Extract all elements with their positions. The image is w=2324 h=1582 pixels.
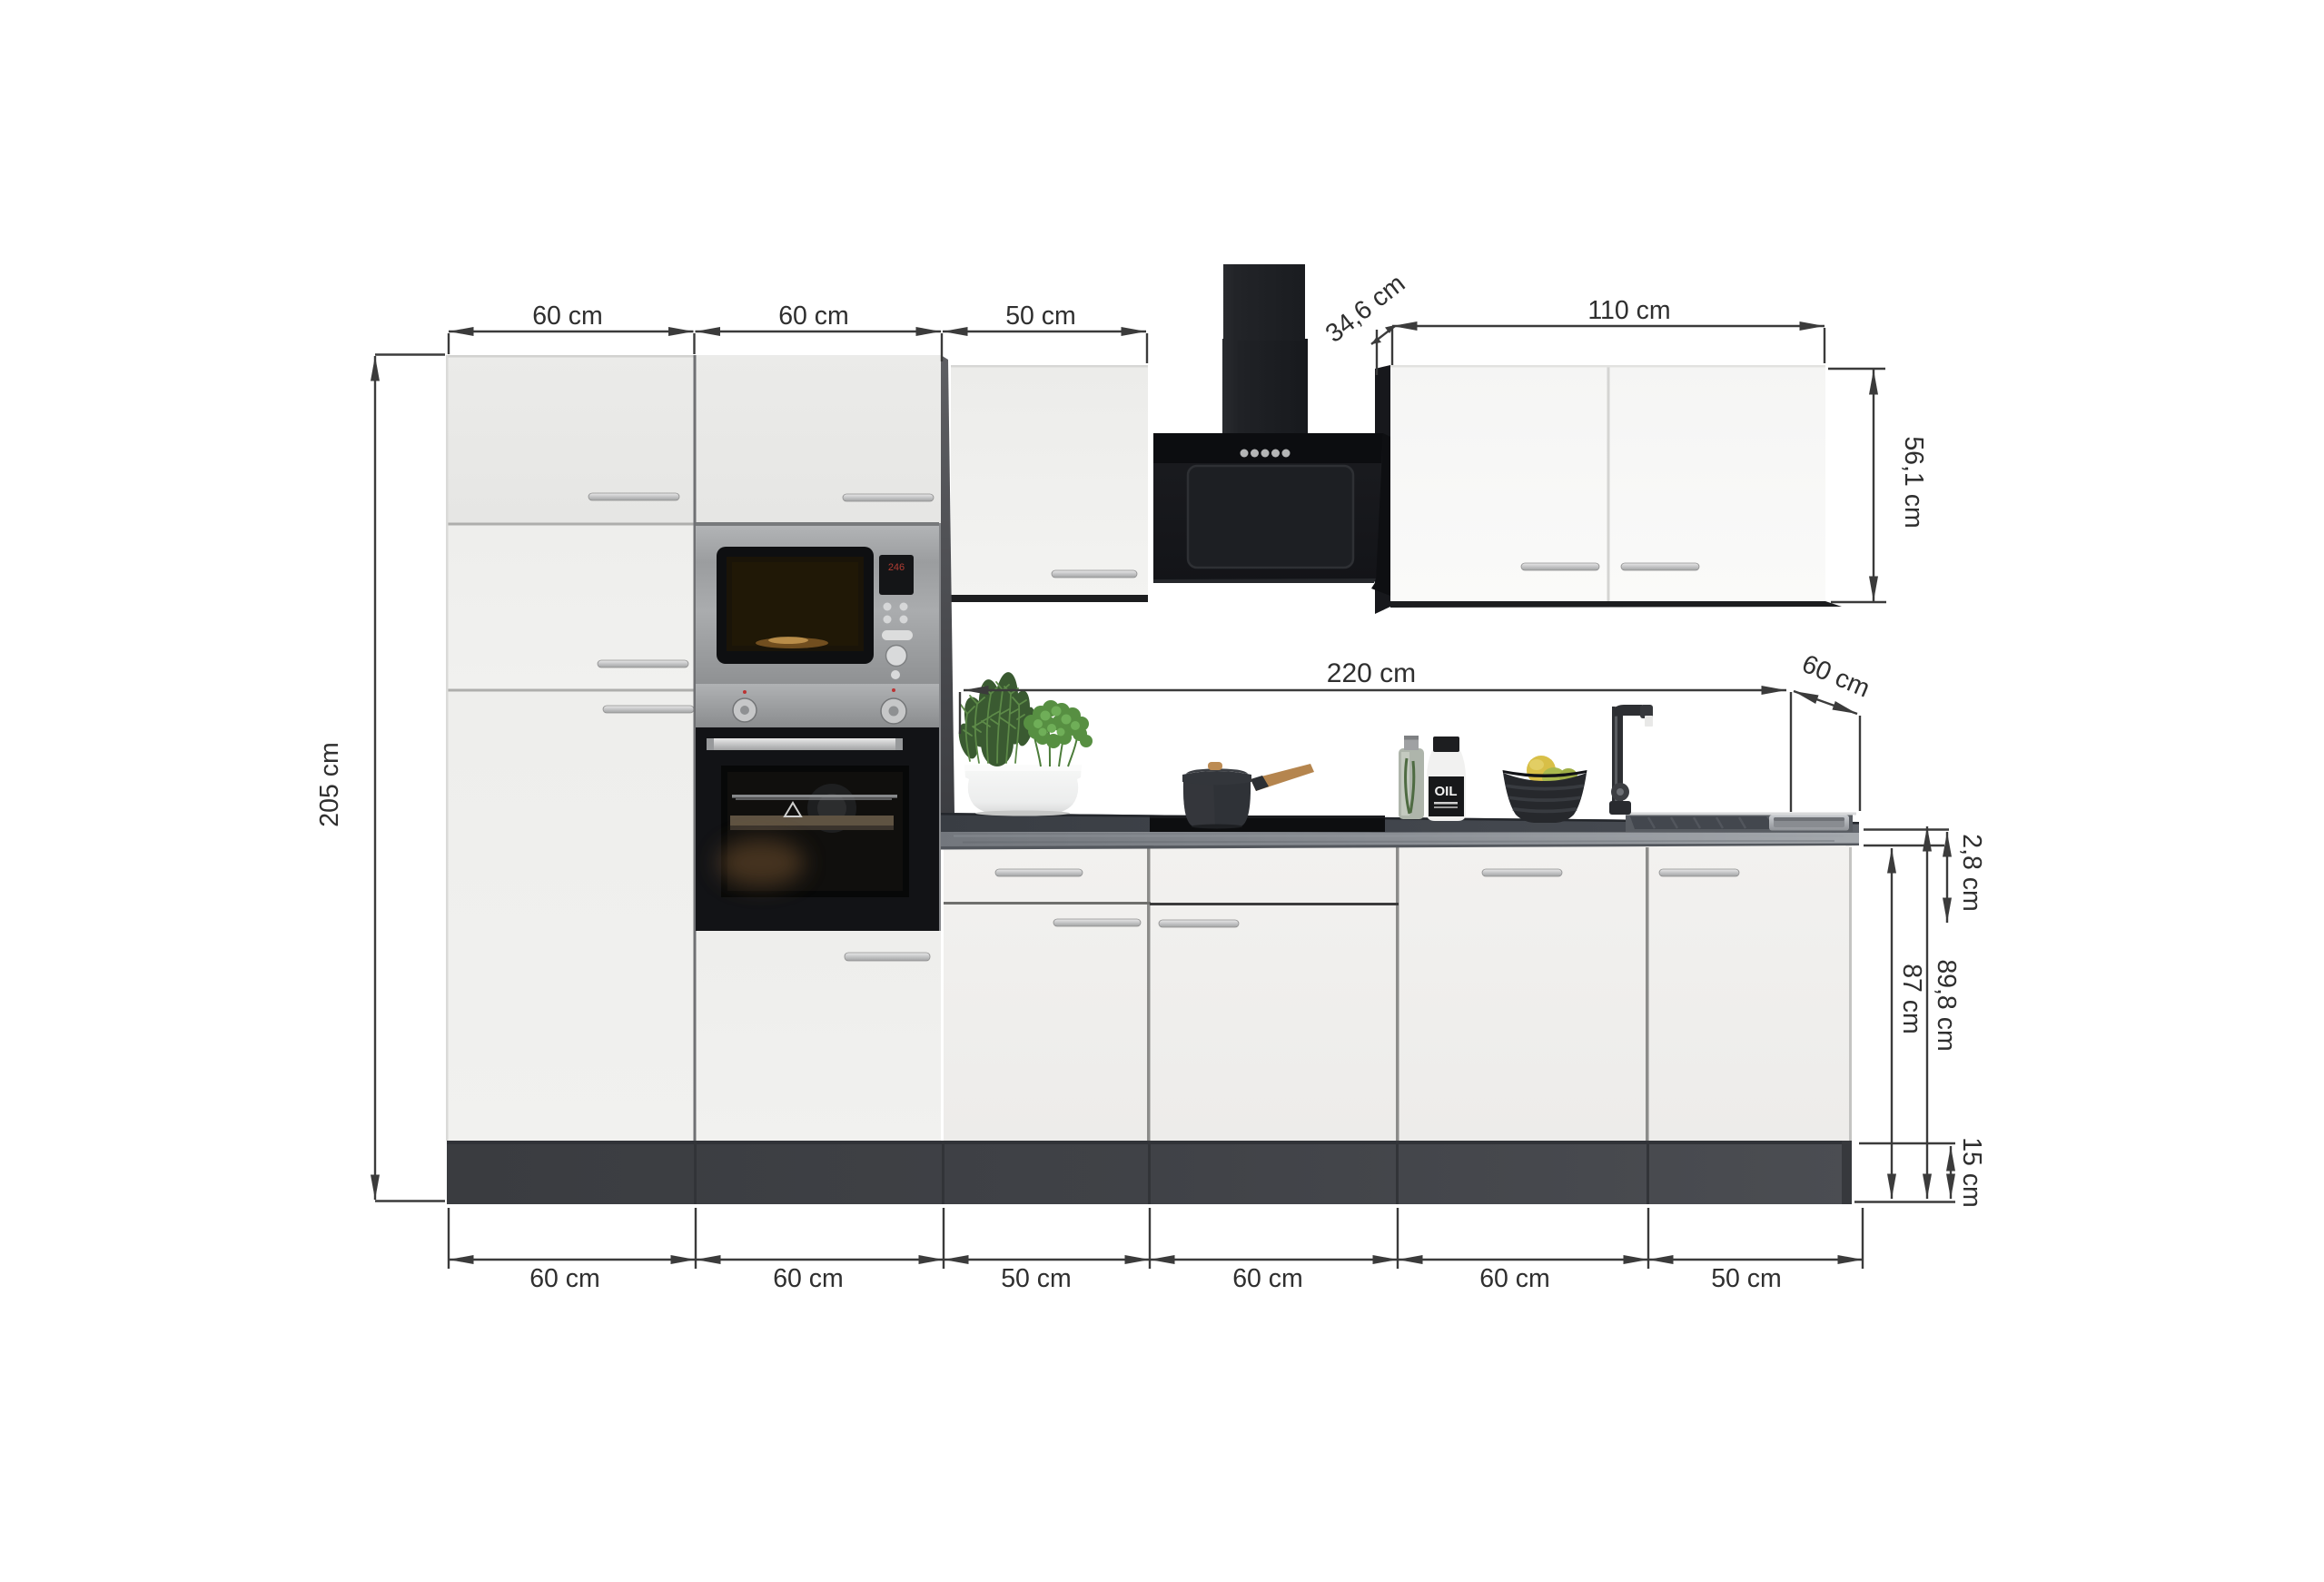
- svg-text:50 cm: 50 cm: [1711, 1264, 1782, 1293]
- svg-text:50 cm: 50 cm: [1005, 302, 1076, 331]
- svg-text:87 cm: 87 cm: [1897, 964, 1926, 1034]
- svg-text:50 cm: 50 cm: [1001, 1264, 1072, 1293]
- svg-text:205 cm: 205 cm: [315, 742, 344, 826]
- svg-text:56,1 cm: 56,1 cm: [1899, 436, 1928, 528]
- svg-text:OIL: OIL: [1435, 784, 1458, 799]
- svg-text:89,8 cm: 89,8 cm: [1932, 959, 1961, 1051]
- svg-text:60 cm: 60 cm: [1479, 1264, 1550, 1293]
- svg-text:110 cm: 110 cm: [1587, 296, 1670, 325]
- svg-text:60 cm: 60 cm: [529, 1264, 600, 1293]
- svg-text:246: 246: [888, 562, 905, 573]
- svg-text:15 cm: 15 cm: [1957, 1137, 1986, 1208]
- svg-text:60 cm: 60 cm: [778, 302, 849, 331]
- svg-text:220 cm: 220 cm: [1327, 658, 1416, 688]
- svg-text:60 cm: 60 cm: [1232, 1264, 1303, 1293]
- svg-text:2,8 cm: 2,8 cm: [1957, 834, 1986, 912]
- svg-text:60 cm: 60 cm: [773, 1264, 844, 1293]
- svg-text:60 cm: 60 cm: [532, 302, 603, 331]
